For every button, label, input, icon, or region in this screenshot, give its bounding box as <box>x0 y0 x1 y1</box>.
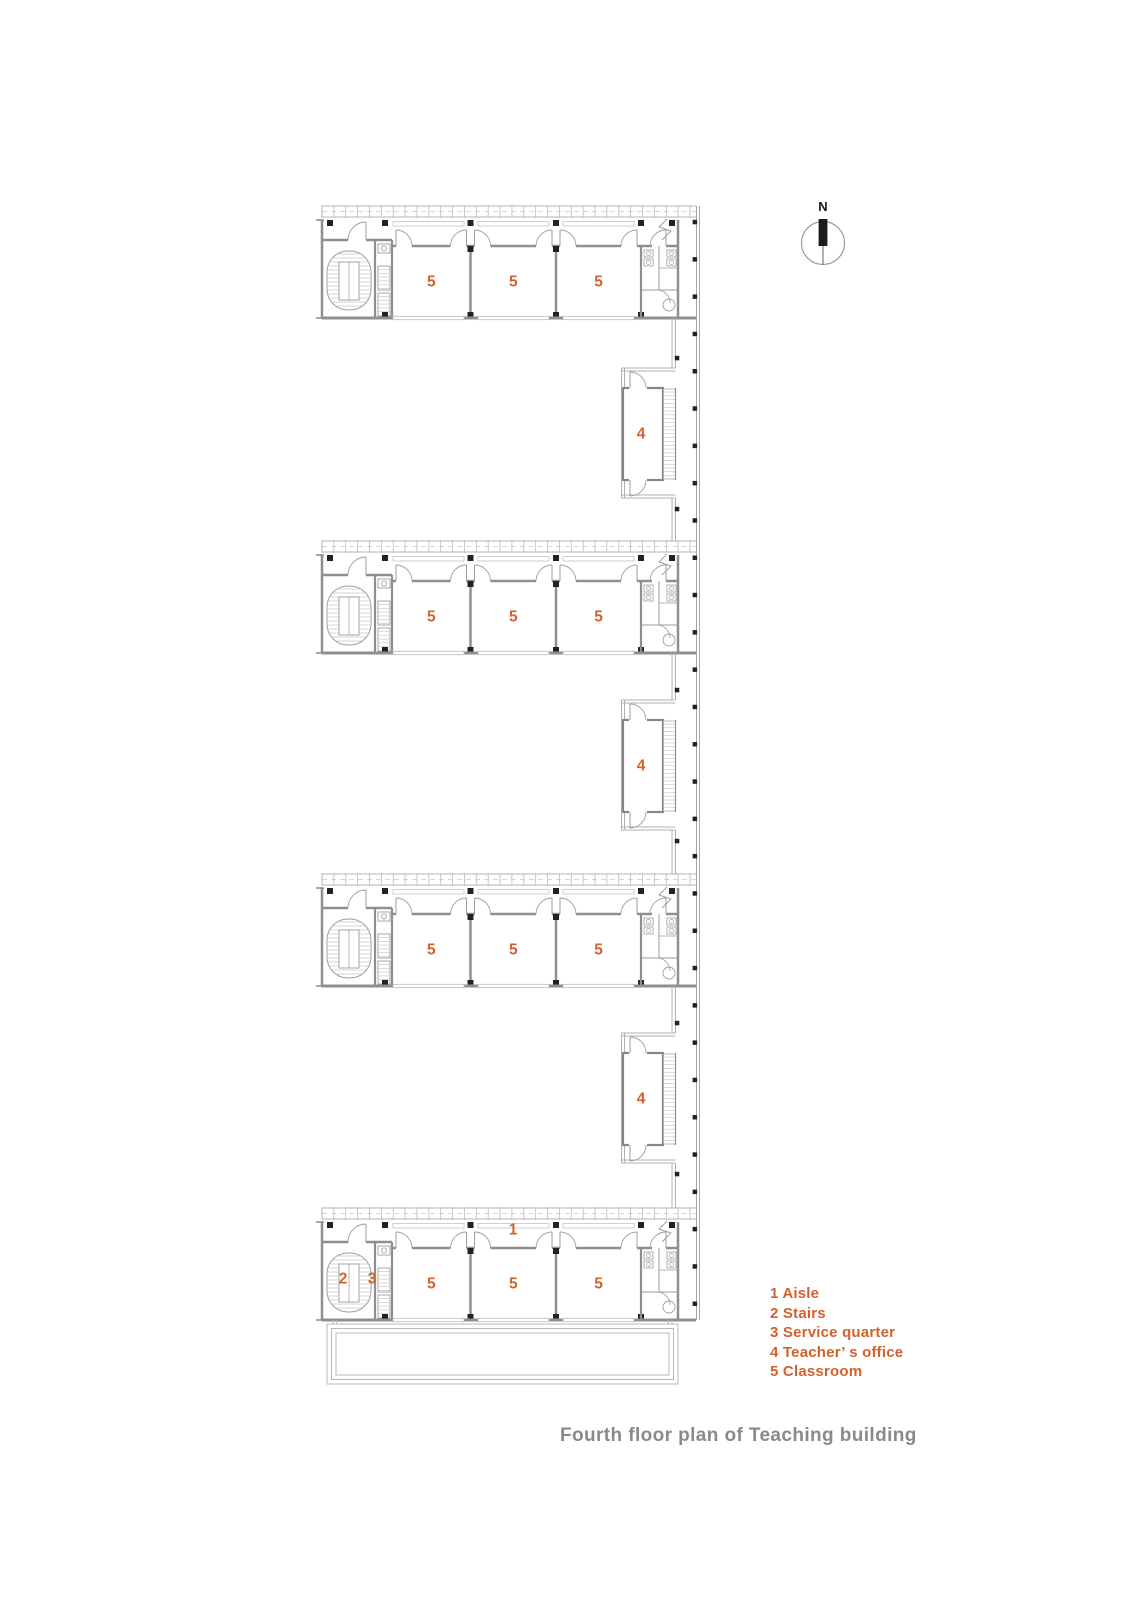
legend-item-4: 4 Teacher’ s office <box>770 1343 903 1363</box>
legend-item-label: Aisle <box>782 1285 819 1302</box>
office-label: 4 <box>637 426 646 443</box>
classroom-label: 5 <box>427 274 436 291</box>
legend-item-label: Classroom <box>783 1363 862 1380</box>
classroom-label: 5 <box>509 609 518 626</box>
classroom-label: 5 <box>509 1276 518 1293</box>
classroom-label: 5 <box>509 942 518 959</box>
legend-item-2: 2 Stairs <box>770 1304 903 1324</box>
office-connector-1: 4 <box>622 318 676 541</box>
wing-3: 555 <box>316 873 696 988</box>
wing-1: 555 <box>316 205 696 320</box>
legend: 1 Aisle2 Stairs3 Service quarter4 Teache… <box>770 1284 903 1382</box>
classroom-label: 5 <box>427 942 436 959</box>
aisle-label: 1 <box>509 1222 518 1239</box>
office-label: 4 <box>637 758 646 775</box>
legend-item-1: 1 Aisle <box>770 1284 903 1304</box>
service-label: 3 <box>368 1271 377 1288</box>
classroom-label: 5 <box>427 609 436 626</box>
classroom-label: 5 <box>427 1276 436 1293</box>
classroom-label: 5 <box>594 609 603 626</box>
north-label: N <box>818 199 827 214</box>
office-label: 4 <box>637 1091 646 1108</box>
floor-plan: 555555555555123444N <box>0 0 1131 1600</box>
legend-item-number: 1 <box>770 1285 779 1302</box>
plan-title: Fourth floor plan of Teaching building <box>560 1425 917 1447</box>
stairs-label: 2 <box>339 1271 348 1288</box>
corridor <box>675 206 700 1320</box>
north-compass: N <box>802 199 845 265</box>
legend-item-5: 5 Classroom <box>770 1362 903 1382</box>
wing-2: 555 <box>316 540 696 655</box>
classroom-label: 5 <box>594 942 603 959</box>
legend-item-3: 3 Service quarter <box>770 1323 903 1343</box>
classroom-label: 5 <box>509 274 518 291</box>
classroom-label: 5 <box>594 274 603 291</box>
legend-item-number: 4 <box>770 1344 779 1361</box>
office-connector-2: 4 <box>622 653 676 874</box>
office-connector-3: 4 <box>622 986 676 1208</box>
legend-item-label: Service quarter <box>783 1324 895 1341</box>
legend-item-label: Stairs <box>783 1305 826 1322</box>
legend-item-number: 5 <box>770 1363 779 1380</box>
legend-item-number: 2 <box>770 1305 779 1322</box>
classroom-label: 5 <box>594 1276 603 1293</box>
legend-item-number: 3 <box>770 1324 779 1341</box>
wing-4: 555123 <box>316 1207 696 1322</box>
legend-item-label: Teacher’ s office <box>783 1344 903 1361</box>
north-needle <box>819 219 828 246</box>
entrance-canopy <box>327 1320 678 1384</box>
